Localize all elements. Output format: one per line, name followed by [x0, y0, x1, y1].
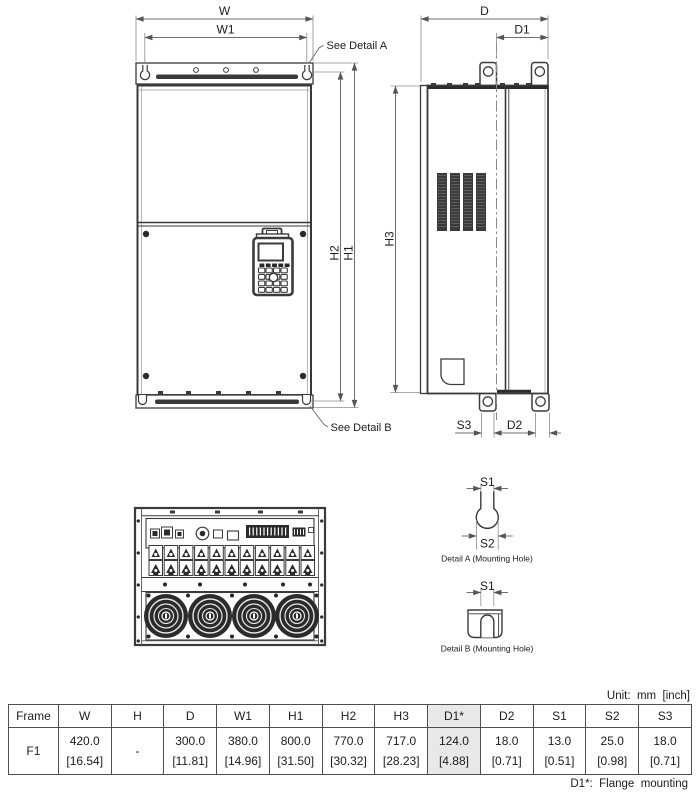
table-row-f1: F1 420.0[16.54] - 300.0[11.81] 380.0[14.… [9, 728, 692, 775]
col-header-d: D [164, 705, 217, 728]
col-header-h: H [111, 705, 164, 728]
detail-b-caption: Detail B (Mounting Hole) [441, 644, 534, 654]
u-slot-shape [481, 615, 494, 638]
dim-label-w1: W1 [217, 23, 235, 37]
dim-label-d: D [480, 4, 489, 18]
see-detail-a-label: See Detail A [327, 40, 388, 52]
bottom-slot [155, 400, 299, 405]
cell-h2: 770.0[30.32] [322, 728, 375, 775]
cell-s1: 13.0[0.51] [533, 728, 586, 775]
cell-s3: 18.0[0.71] [639, 728, 692, 775]
cell-h3: 717.0[28.23] [375, 728, 428, 775]
dim-label-w: W [219, 4, 231, 18]
dim-label-s1-detail-a: S1 [480, 475, 495, 489]
dim-label-d1: D1 [514, 23, 530, 37]
col-header-s3: S3 [639, 705, 692, 728]
cell-h: - [111, 728, 164, 775]
bottom-notch-left [139, 395, 147, 405]
terminal-row-lower [149, 561, 315, 576]
top-slot [156, 75, 298, 80]
unit-note: Unit: mm [inch] [8, 690, 690, 702]
top-mounting-bracket [136, 63, 313, 84]
dim-label-h1: H1 [342, 245, 356, 261]
cell-frame: F1 [9, 728, 59, 775]
screw-icon [300, 373, 306, 379]
bottom-notch-right [303, 395, 311, 405]
dim-label-s1-detail-b: S1 [480, 579, 495, 593]
col-header-s1: S1 [533, 705, 586, 728]
flange-footnote: D1*: Flange mounting [8, 778, 688, 790]
keypad-display [259, 244, 284, 261]
cell-d: 300.0[11.81] [164, 728, 217, 775]
screw-icon [143, 231, 149, 237]
dim-label-d2: D2 [507, 418, 523, 432]
cell-d1: 124.0[4.88] [428, 728, 481, 775]
keypad [254, 229, 293, 296]
table-header-row: Frame W H D W1 H1 H2 H3 D1* D2 S1 S2 S3 [9, 705, 692, 728]
dimension-table-section: Unit: mm [inch] Frame W H D W1 H1 H2 H3 … [0, 690, 698, 790]
detail-a: S1 S2 Detail A (Mounting Hole) [441, 475, 533, 564]
cell-d2: 18.0[0.71] [480, 728, 533, 775]
col-header-s2: S2 [586, 705, 639, 728]
side-view [421, 42, 550, 420]
col-header-w: W [58, 705, 111, 728]
side-body [428, 86, 549, 394]
cell-s2: 25.0[0.98] [586, 728, 639, 775]
col-header-d2: D2 [480, 705, 533, 728]
side-front-flange [421, 86, 428, 394]
col-header-frame: Frame [9, 705, 59, 728]
cell-h1: 800.0[31.50] [269, 728, 322, 775]
col-header-d1: D1* [428, 705, 481, 728]
dim-label-h3: H3 [383, 231, 397, 247]
see-detail-b-label: See Detail B [331, 422, 392, 434]
screw-icon [143, 373, 149, 379]
col-header-w1: W1 [217, 705, 270, 728]
col-header-h1: H1 [269, 705, 322, 728]
terminal-row-upper [149, 546, 315, 560]
dim-label-s3: S3 [457, 418, 472, 432]
front-view [136, 63, 313, 408]
dimension-drawing: W W1 See Detail A H2 H1 See Detail B [0, 0, 698, 690]
dim-label-h2: H2 [328, 245, 342, 261]
cell-w: 420.0[16.54] [58, 728, 111, 775]
detail-a-caption: Detail A (Mounting Hole) [441, 554, 533, 564]
side-access-panel [441, 359, 464, 385]
keypad-dial [269, 273, 277, 281]
detail-b: S1 Detail B (Mounting Hole) [441, 579, 534, 654]
dimension-table: Frame W H D W1 H1 H2 H3 D1* D2 S1 S2 S3 … [8, 704, 692, 775]
cell-w1: 380.0[14.96] [217, 728, 270, 775]
col-header-h3: H3 [375, 705, 428, 728]
keyhole-shape [476, 492, 498, 529]
screw-icon [300, 231, 306, 237]
bottom-view [135, 508, 325, 645]
dim-label-s2: S2 [480, 537, 495, 551]
col-header-h2: H2 [322, 705, 375, 728]
